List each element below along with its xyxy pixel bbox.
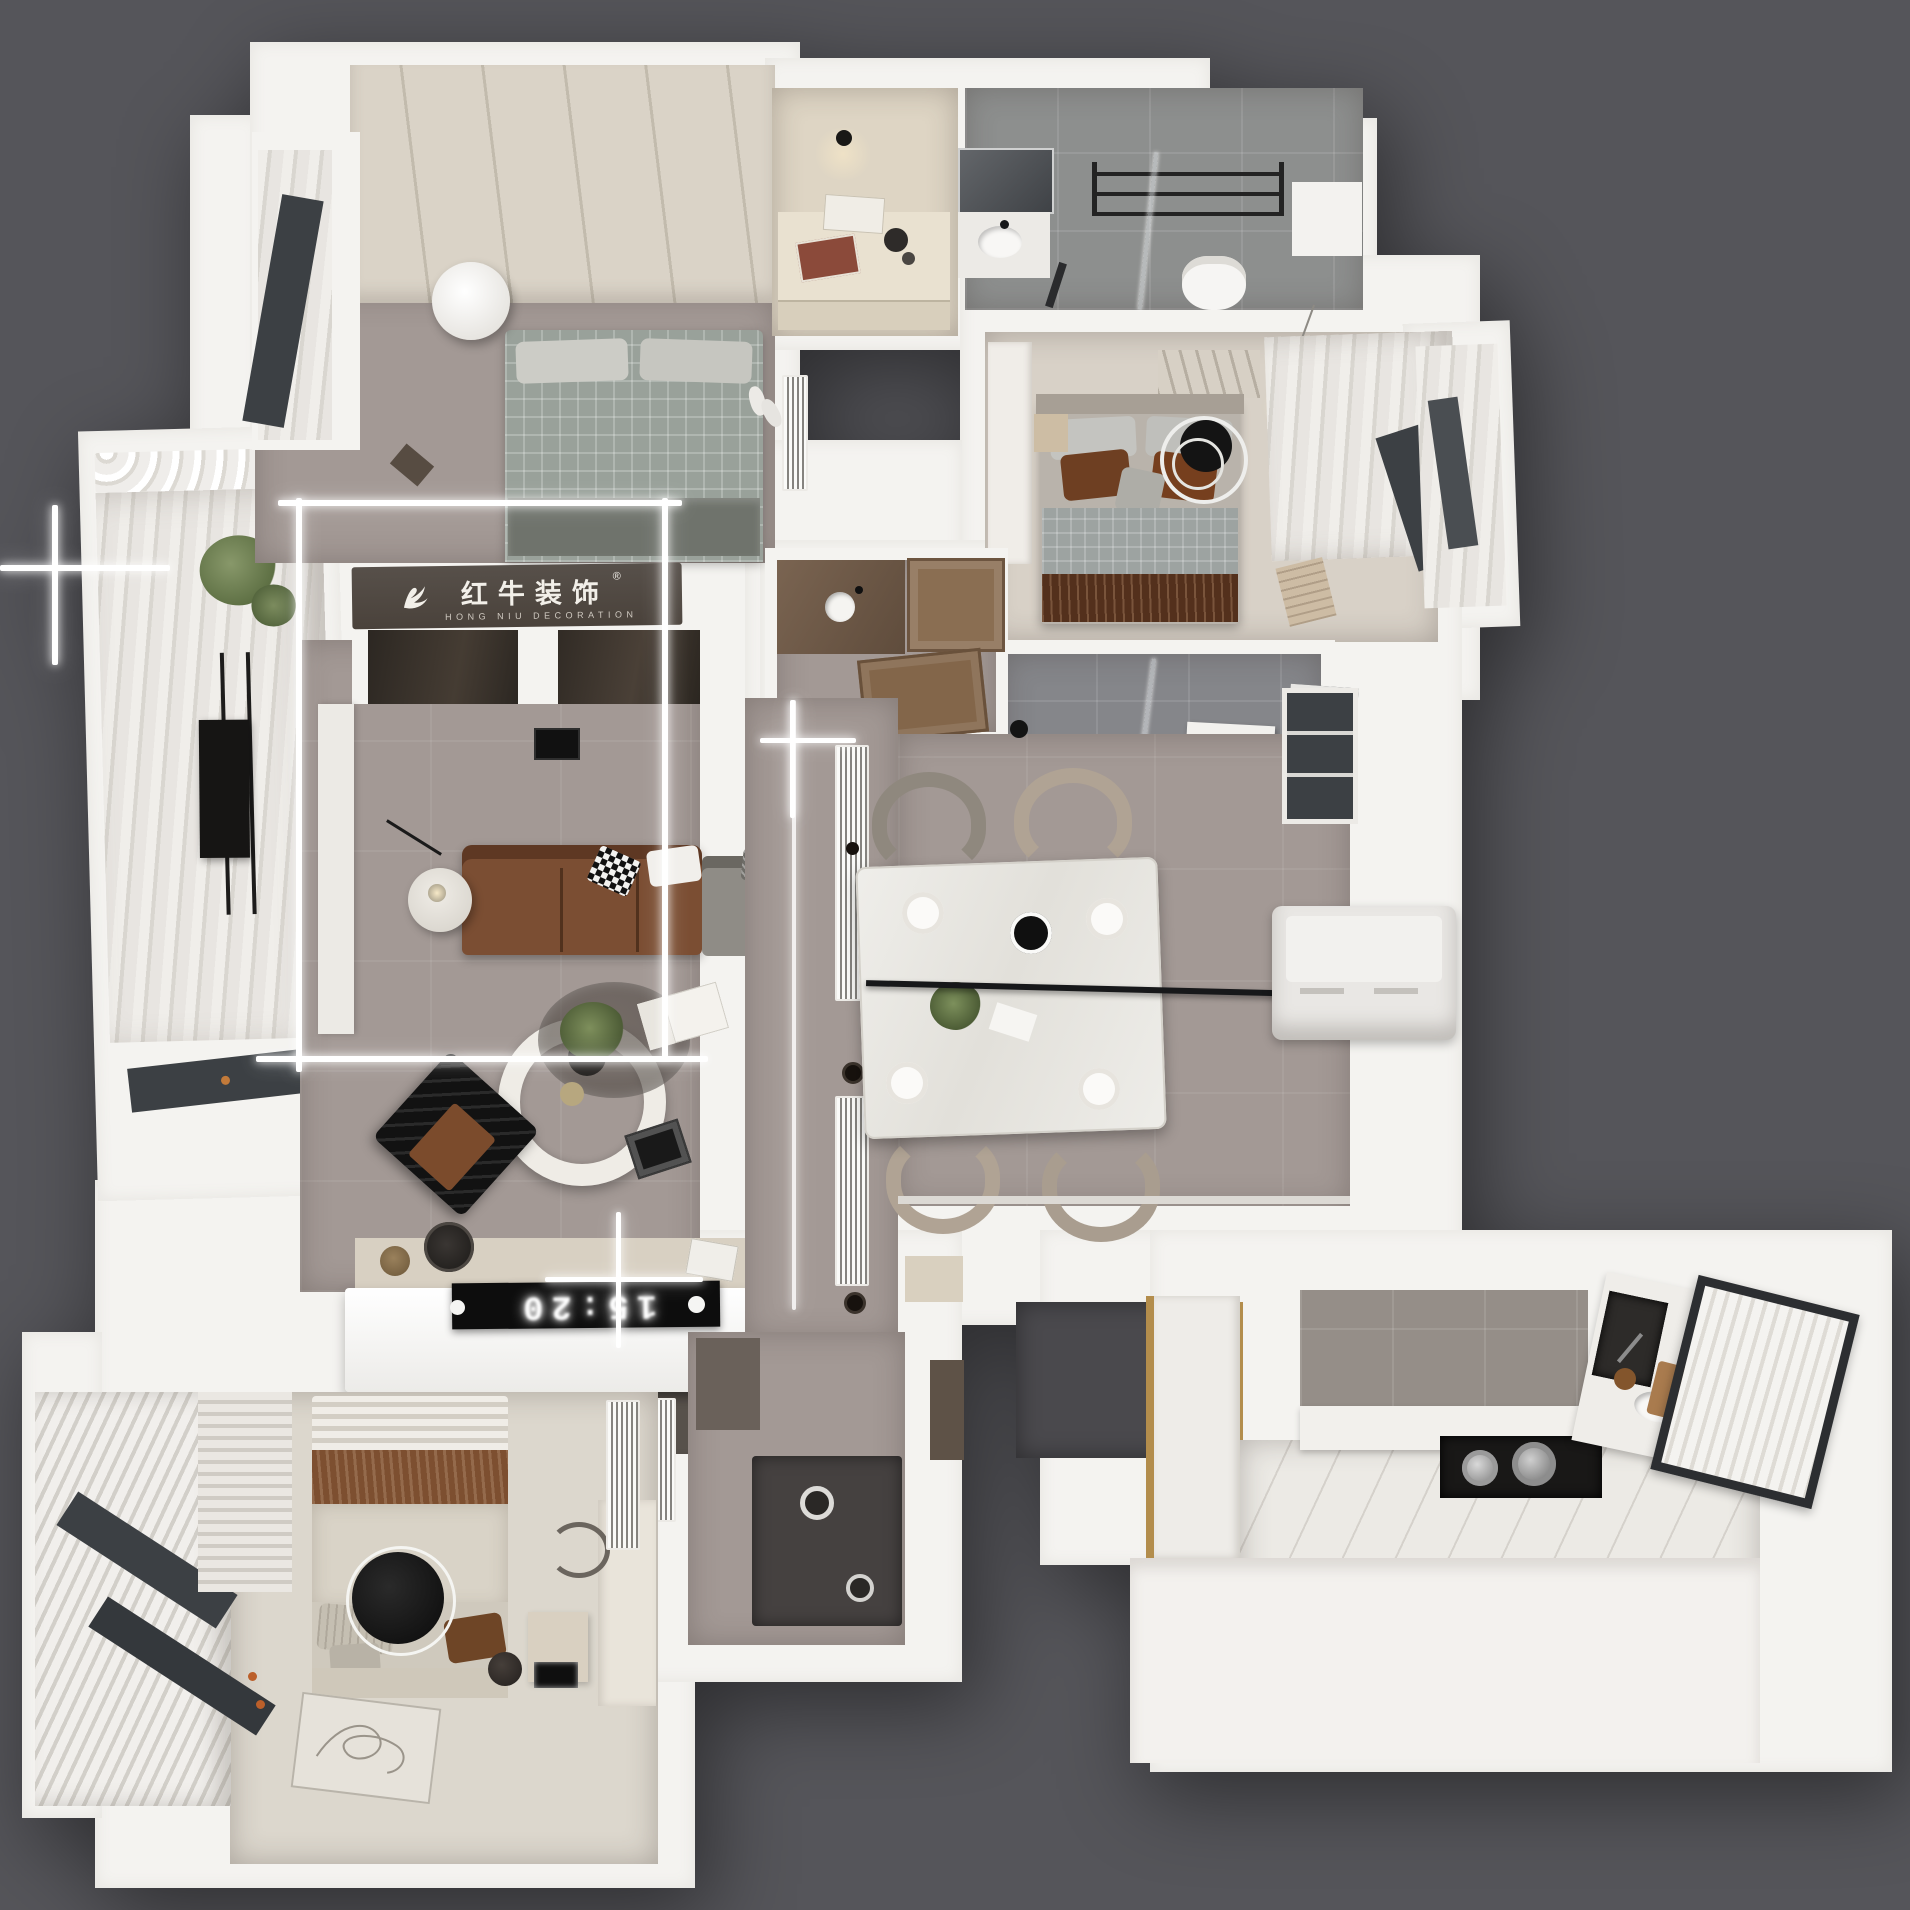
bedroom2-pillow-left bbox=[515, 338, 628, 384]
nook-cup bbox=[902, 252, 915, 265]
bedroom2-pendant-lamp bbox=[432, 262, 510, 340]
crosshair-west-v bbox=[52, 505, 58, 665]
pot-large bbox=[1512, 1442, 1556, 1486]
plate-top-left bbox=[902, 892, 944, 934]
bedroom3-rug bbox=[291, 1692, 442, 1804]
bedroom3-desk-chair bbox=[548, 1522, 610, 1578]
entry-door-edge bbox=[930, 1360, 964, 1460]
registered-mark: ® bbox=[613, 570, 621, 582]
master-bedside-left bbox=[1034, 414, 1068, 452]
bathroom1-faucet bbox=[1000, 220, 1009, 229]
corridor-drain-b bbox=[844, 1292, 866, 1314]
fridge-handle-left bbox=[1300, 988, 1344, 994]
bedroom2-foot-blanket bbox=[508, 498, 760, 556]
lightline-right bbox=[662, 498, 668, 1058]
dining-window-bar bbox=[1287, 731, 1353, 735]
coffee-table-gold-dish bbox=[560, 1082, 584, 1106]
showerroom-door-panel bbox=[696, 1338, 760, 1430]
wall-speaker-box bbox=[534, 728, 580, 760]
brass-bowl bbox=[380, 1246, 410, 1276]
dining-door-stopper bbox=[1010, 720, 1028, 738]
coffee-table-plant bbox=[560, 1002, 626, 1060]
brand-name-en: HONG NIU DECORATION bbox=[445, 609, 637, 622]
crosshair-west-h bbox=[0, 565, 170, 571]
bed3-platform bbox=[312, 1668, 508, 1698]
vanity-basin bbox=[825, 592, 855, 622]
master-ring-decor-inner bbox=[1172, 438, 1224, 490]
table-plant bbox=[930, 982, 982, 1030]
dining-chair-top-left bbox=[872, 772, 986, 874]
plate-bottom-left bbox=[886, 1062, 928, 1104]
bedroom3-handle-dot-b bbox=[256, 1700, 265, 1709]
corridor-drain-a bbox=[842, 1062, 864, 1084]
bedroom3-vent bbox=[606, 1400, 640, 1550]
master-throw-brown bbox=[1042, 574, 1238, 622]
dining-window bbox=[1282, 688, 1358, 824]
bedroom3-vase bbox=[488, 1652, 522, 1686]
master-headboard bbox=[1036, 394, 1244, 414]
fridge bbox=[1272, 906, 1456, 1040]
vanity-faucet bbox=[855, 586, 863, 594]
living-floor bbox=[300, 640, 700, 1292]
plate-bottom-right bbox=[1078, 1068, 1120, 1110]
corridor-drain-c bbox=[846, 842, 859, 855]
floor-lamp-bulb bbox=[428, 884, 446, 902]
fridge-top-panel bbox=[1286, 916, 1442, 982]
tv-knob-left bbox=[450, 1300, 465, 1315]
kitchen-tall-cabinet bbox=[1154, 1296, 1240, 1558]
fridge-handle-right bbox=[1374, 988, 1418, 994]
bathroom1-toilet bbox=[1182, 256, 1246, 310]
vanity-wood-door-a bbox=[907, 558, 1005, 652]
dining-chair-bottom-left bbox=[886, 1132, 1000, 1234]
kitchen-platform-south bbox=[1130, 1558, 1760, 1763]
bedroom2-floor-vent bbox=[782, 375, 808, 491]
brand-name-cn: 红牛装饰 bbox=[461, 570, 610, 611]
bedroom3-radiator-panel bbox=[198, 1392, 292, 1592]
dining-chair-bottom-right bbox=[1042, 1138, 1160, 1242]
shower-tray bbox=[752, 1456, 902, 1626]
crosshair-hall-h bbox=[545, 1277, 703, 1282]
bathroom1-shelf bbox=[1292, 182, 1362, 256]
lightline-bottom bbox=[256, 1056, 708, 1062]
plate-top-right bbox=[1086, 898, 1128, 940]
apartment-floorplan: 红牛装饰 ® HONG NIU DECORATION 15:20 bbox=[0, 0, 1910, 1910]
bedroom3-clock bbox=[534, 1662, 578, 1688]
bathroom1-towel-rack bbox=[1092, 162, 1284, 216]
master-closet bbox=[988, 342, 1032, 564]
tv-knob-right bbox=[688, 1296, 705, 1313]
hongniu-bird-logo-icon bbox=[397, 580, 431, 614]
dining-chair-top-right bbox=[1014, 768, 1132, 872]
living-sideboard bbox=[318, 704, 354, 1034]
rug-line-art bbox=[293, 1694, 435, 1797]
entry-beige-cabinet bbox=[905, 1256, 963, 1302]
crosshair-corridor-v bbox=[790, 700, 795, 818]
bathroom1-mirror-cabinet bbox=[958, 148, 1054, 214]
shower-drain-b bbox=[846, 1574, 874, 1602]
decor-plate bbox=[424, 1222, 474, 1272]
living-feature-panel-b bbox=[558, 630, 700, 704]
kitchen-backsplash bbox=[1300, 1290, 1588, 1408]
master-art-panel bbox=[1158, 350, 1260, 398]
pot-small bbox=[1462, 1450, 1498, 1486]
black-serving-tray bbox=[1010, 912, 1052, 954]
lightline-top bbox=[278, 500, 682, 506]
brand-banner: 红牛装饰 ® HONG NIU DECORATION bbox=[352, 563, 683, 630]
balcony-tv-panel bbox=[199, 720, 250, 858]
nook-wall-sconce bbox=[836, 130, 852, 146]
render-canvas: 红牛装饰 ® HONG NIU DECORATION 15:20 bbox=[0, 0, 1910, 1910]
bedroom3-handle-dot-a bbox=[248, 1672, 257, 1681]
shower-drain-a bbox=[800, 1486, 834, 1520]
bed3-brown-throw bbox=[312, 1450, 508, 1504]
tv-clock-display: 15:20 bbox=[515, 1285, 657, 1324]
kitchen-gold-sliver bbox=[1146, 1296, 1154, 1558]
round-board bbox=[1614, 1368, 1636, 1390]
bedroom2-pillow-right bbox=[639, 338, 752, 384]
living-feature-panel-a bbox=[368, 630, 518, 704]
dining-window-bar2 bbox=[1287, 773, 1353, 777]
nook-drawers bbox=[778, 300, 950, 330]
crosshair-hall-v bbox=[616, 1212, 621, 1348]
bed3-foot-blanket bbox=[312, 1396, 508, 1450]
tv-flat-screen: 15:20 bbox=[452, 1281, 720, 1330]
bed3-black-disc bbox=[352, 1552, 444, 1644]
master-duvet-plaid bbox=[1042, 508, 1238, 576]
lightline-left bbox=[296, 498, 302, 1072]
sofa-cushion-line-2 bbox=[636, 868, 639, 952]
bathroom1-basin bbox=[978, 226, 1022, 258]
sofa-cushion-line bbox=[560, 868, 563, 952]
nook-jar bbox=[884, 228, 908, 252]
nook-book-stack bbox=[823, 194, 885, 234]
sofa-pillow-white bbox=[646, 845, 703, 888]
crosshair-corridor-h bbox=[760, 738, 856, 743]
entry-shade-strip bbox=[898, 1196, 1350, 1204]
bedroom2-wardrobe bbox=[350, 65, 775, 303]
